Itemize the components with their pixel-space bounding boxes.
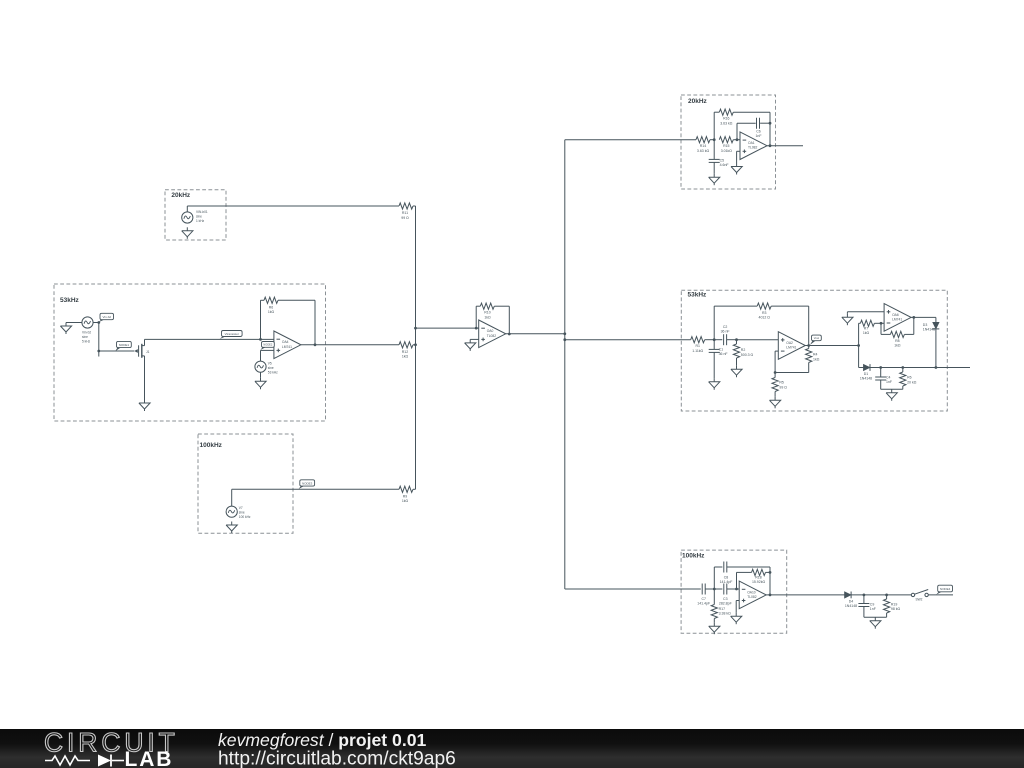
svg-text:http://circuitlab.com/ckt9ap6: http://circuitlab.com/ckt9ap6 bbox=[218, 749, 456, 768]
svg-text:kevmegforest / projet 0.01: kevmegforest / projet 0.01 bbox=[218, 730, 426, 750]
svg-text:LAB: LAB bbox=[125, 748, 174, 768]
